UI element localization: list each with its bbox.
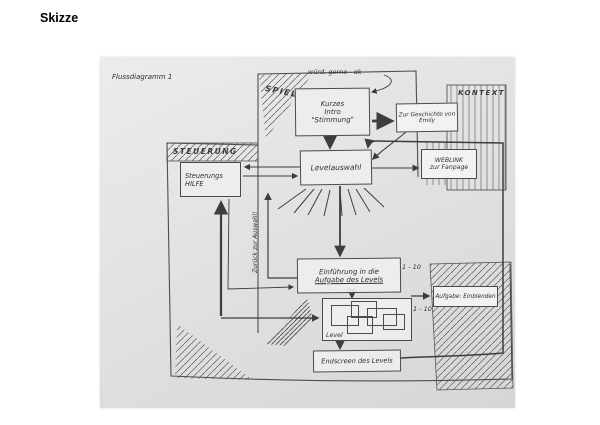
section-label-kontext: KONTEXT [458,89,505,98]
note-arrow [372,75,391,92]
center-hatch-patch [266,298,313,346]
level-window-thumbnail [347,316,373,334]
intro-line1: Kurzes [321,100,344,108]
node-endscreen: Endscreen des Levels [313,349,401,372]
intro-line3: "Stimmung" [311,116,354,124]
levelauswahl-rays [278,188,384,216]
level-window-thumbnail [383,314,405,330]
arrow-back-to-selection [268,194,297,278]
node-level: Level [322,298,412,341]
section-label-steuerung: STEUERUNG [173,147,238,156]
levelauswahl-label: Levelauswahl [311,163,362,173]
arrow-hilfe-to-einfuehrung [228,199,293,289]
steuerungshilfe-line2: HILFE [185,180,204,188]
arrow-geschichte-to-levelauswahl [373,132,406,159]
weblink-line2: zur Fanpage [430,164,468,171]
geschichte-line2: Emily [419,117,435,123]
node-weblink: WEBLINK zur Fanpage [421,149,477,179]
node-steuerungshilfe: Steuerungs HILFE [180,162,241,197]
weblink-line1: WEBLINK [435,157,463,164]
scanned-sketch-paper: Flussdiagramm 1 würd. gerne - ok SPIEL S… [100,57,515,408]
node-levelauswahl: Levelauswahl [300,149,372,185]
intro-line2: Intro [324,108,340,116]
einfuehrung-line2: Aufgabe des Levels [315,275,383,284]
endscreen-label: Endscreen des Levels [321,357,393,366]
edge-label-zurueck: Zurück zur Auswahl! [252,211,260,273]
node-einfuehrung: Einführung in die Aufgabe des Levels [297,258,401,294]
bottom-left-hatch [175,324,253,380]
node-aufgabe: Aufgabe: Einblenden [433,286,498,307]
node-geschichte: Zur Geschichte von Emily [396,102,458,132]
page-title: Skizze [40,11,78,25]
aufgabe-label: Aufgabe: Einblenden [435,294,495,300]
annotation-flussdiagramm: Flussdiagramm 1 [112,73,172,82]
steuerungshilfe-line1: Steuerungs [185,172,223,180]
bottom-right-hatch [430,262,513,390]
level-label: Level [326,332,343,340]
einfuehrung-range-badge: 1 - 10 [402,263,421,271]
level-range-badge: 1 - 10 [413,305,432,313]
annotation-note: würd. gerne - ok [308,68,362,76]
node-kurzes-intro: Kurzes Intro "Stimmung" [295,88,370,137]
